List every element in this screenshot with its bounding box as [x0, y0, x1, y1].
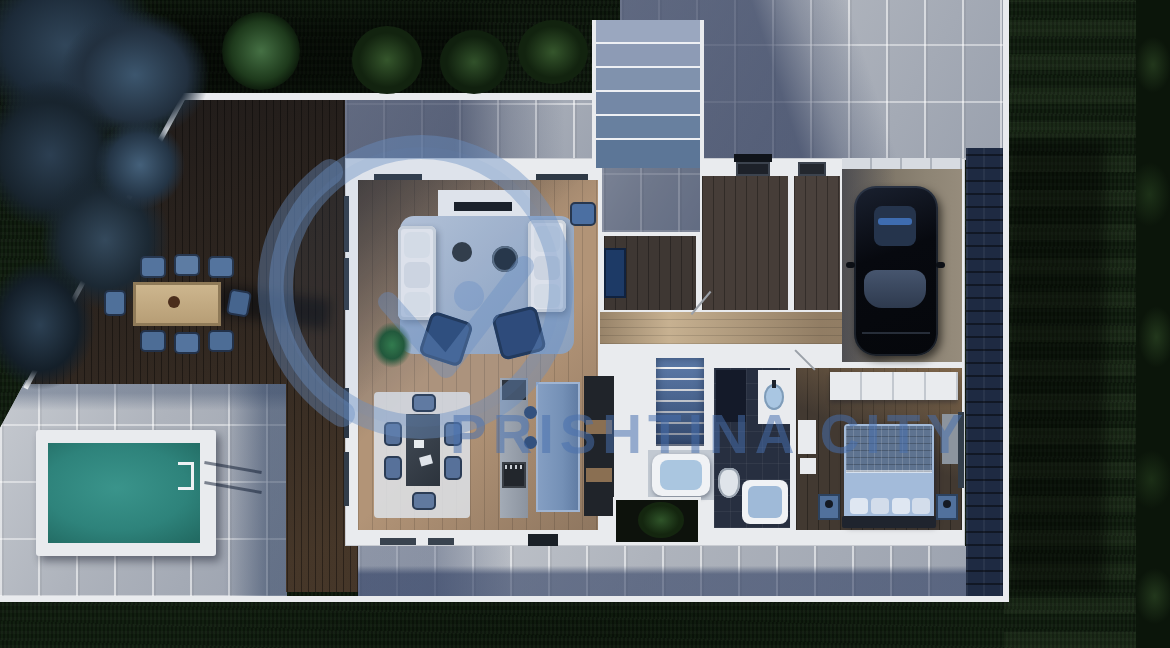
- bed-fold: [846, 470, 932, 473]
- bush-1: [352, 26, 422, 94]
- step: [596, 68, 700, 92]
- north-patio-shadow: [345, 100, 620, 162]
- courtyard-tree: [638, 502, 684, 538]
- entry-hall-floor: [702, 176, 788, 310]
- window-west: [344, 196, 349, 252]
- window-north: [536, 174, 588, 180]
- step: [596, 20, 700, 44]
- coffee-station: [502, 380, 526, 400]
- dining-chair: [384, 422, 402, 446]
- car-mirror: [936, 262, 945, 268]
- sofa-cushion: [404, 232, 430, 258]
- headboard: [842, 516, 936, 528]
- south-curb: [0, 596, 1009, 602]
- window-west: [344, 452, 349, 506]
- hedge-right-edge: [1136, 0, 1170, 648]
- pillow: [912, 498, 930, 514]
- door-canopy: [734, 154, 772, 162]
- step: [596, 44, 700, 68]
- garage-door: [842, 158, 962, 169]
- step: [596, 92, 700, 116]
- window-south: [428, 538, 454, 545]
- round-tree: [222, 12, 300, 90]
- table-centerpiece: [168, 296, 180, 308]
- glass-door-west: [344, 388, 349, 438]
- corridor-floor: [600, 312, 876, 344]
- bush-3: [518, 20, 588, 84]
- pool-ladder: [178, 462, 194, 490]
- swimming-pool: [48, 443, 200, 543]
- office-desk: [604, 248, 626, 298]
- window-west: [344, 258, 349, 310]
- outdoor-chair: [208, 330, 234, 352]
- faucet: [772, 380, 776, 388]
- appliance-shelf: [586, 468, 612, 482]
- east-roof-overhang: [966, 148, 1003, 598]
- side-door: [798, 162, 826, 176]
- entry-steps: [592, 20, 704, 168]
- outdoor-chair: [140, 256, 166, 278]
- house-plant: [372, 322, 412, 368]
- car-windshield: [864, 270, 926, 308]
- accent-chair: [570, 202, 596, 226]
- outdoor-chair: [208, 256, 234, 278]
- dining-chair: [412, 492, 436, 510]
- pillow: [892, 498, 910, 514]
- floorplan-render: PRISHTINA CITY: [0, 0, 1170, 648]
- coffee-table: [452, 242, 472, 262]
- outdoor-chair: [140, 330, 166, 352]
- sofa-cushion: [404, 292, 430, 316]
- outdoor-chair: [174, 332, 200, 354]
- sofa-cushion: [404, 262, 430, 288]
- toilet: [718, 468, 740, 498]
- car-trunk-line: [862, 332, 930, 334]
- table-items: [414, 440, 424, 448]
- pillow: [850, 498, 868, 514]
- dining-chair: [412, 394, 436, 412]
- north-garden-wall: [183, 93, 620, 100]
- outdoor-chair: [226, 288, 252, 317]
- indoor-dining-table: [406, 414, 440, 486]
- tv-screen: [454, 202, 512, 211]
- mudroom-floor: [794, 176, 840, 310]
- east-curb: [1003, 0, 1009, 602]
- walkway-shading: [358, 546, 1004, 598]
- tree-cluster-6: [95, 120, 185, 210]
- house-shadow-on-lawn: [1009, 140, 1105, 592]
- car-mirror: [846, 262, 855, 268]
- sofa-cushion: [534, 256, 560, 280]
- lamp: [943, 500, 951, 508]
- coffee-table: [492, 246, 518, 272]
- lamp: [825, 500, 833, 508]
- dining-chair: [384, 456, 402, 480]
- watermark-text: PRISHTINA CITY: [450, 402, 1010, 466]
- pillow: [871, 498, 889, 514]
- outdoor-chair: [174, 254, 200, 276]
- step: [596, 116, 700, 140]
- sofa-cushion: [534, 284, 560, 308]
- car-lightbar: [878, 218, 912, 225]
- sofa-cushion: [534, 226, 560, 252]
- outdoor-chair: [104, 290, 126, 316]
- door-south: [528, 534, 558, 546]
- front-door: [736, 162, 770, 176]
- window-north: [374, 174, 422, 180]
- bush-2: [440, 30, 508, 94]
- wardrobe: [830, 372, 958, 400]
- bathtub-2-basin: [748, 486, 782, 518]
- window-south: [380, 538, 416, 545]
- car-roof-glass: [874, 206, 916, 246]
- entry-landing-shadow: [602, 162, 700, 232]
- step: [596, 140, 700, 168]
